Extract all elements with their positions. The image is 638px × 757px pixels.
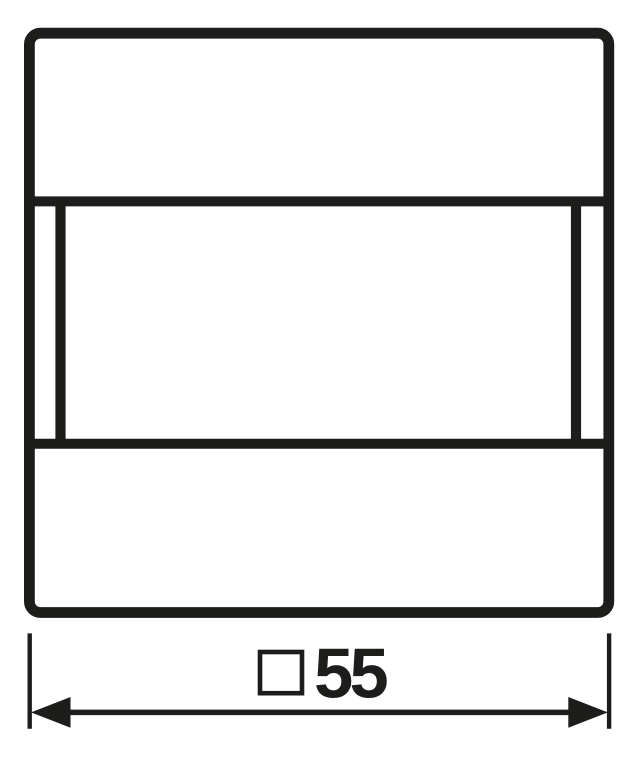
svg-text:55: 55 <box>314 634 387 713</box>
